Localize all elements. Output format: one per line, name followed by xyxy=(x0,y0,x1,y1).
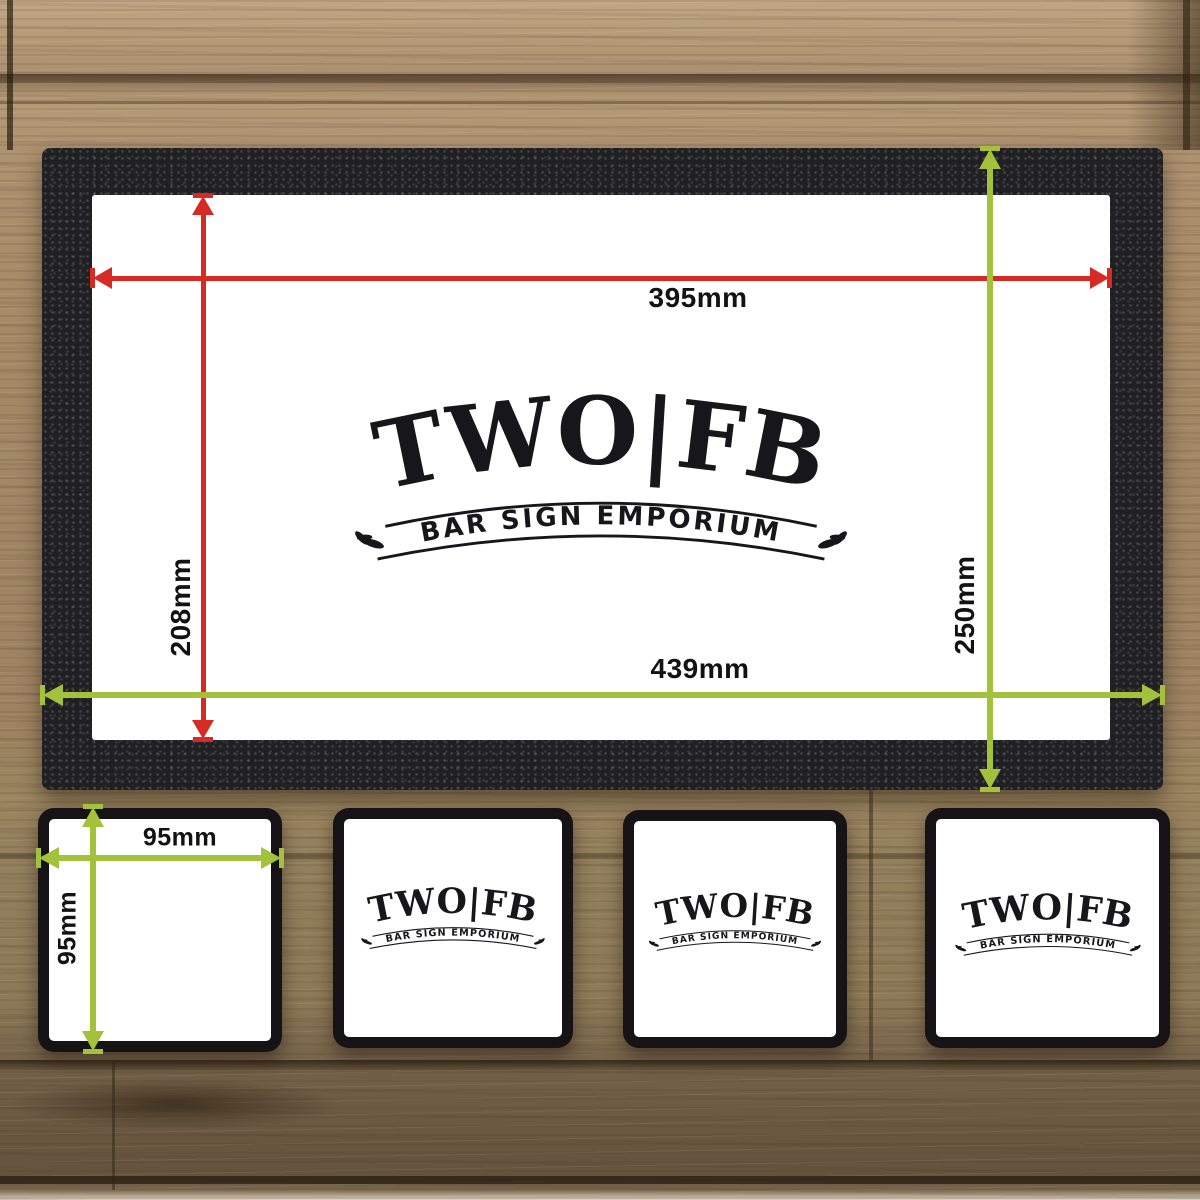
logo-tagline: BAR SIGN EMPORIUM xyxy=(418,501,784,548)
product-photo-scene: TWO|FBBAR SIGN EMPORIUM 395mm 208mm 439m… xyxy=(0,0,1200,1200)
twofb-logo-svg: TWO|FBBAR SIGN EMPORIUM xyxy=(341,378,861,582)
wood-plank-joint xyxy=(7,0,13,150)
coaster-print-area: TWO|FBBAR SIGN EMPORIUM xyxy=(936,819,1159,1037)
leaf-ornament-right-icon xyxy=(1128,944,1142,953)
end-tick xyxy=(83,1049,103,1054)
end-tick xyxy=(193,737,213,742)
twofb-logo-svg: TWO|FBBAR SIGN EMPORIUM xyxy=(356,881,550,957)
dimension-line xyxy=(201,207,206,728)
end-tick xyxy=(90,268,95,288)
end-tick xyxy=(980,787,1000,792)
wood-plank-joint xyxy=(0,1176,1200,1184)
dimension-line xyxy=(104,276,1098,281)
dimension-line xyxy=(987,160,993,778)
dimension-label: 95mm xyxy=(143,824,217,853)
wood-knot xyxy=(10,1078,340,1130)
end-tick xyxy=(40,685,45,705)
wood-plank-joint xyxy=(869,790,873,1062)
logo-wordmark: TWO|FB xyxy=(959,887,1136,938)
coaster-printed: TWO|FBBAR SIGN EMPORIUM xyxy=(925,808,1170,1048)
logo-wordmark: TWO|FB xyxy=(652,887,817,934)
coaster-print-area: TWO|FBBAR SIGN EMPORIUM xyxy=(634,821,836,1037)
end-tick xyxy=(1107,268,1112,288)
coaster-printed: TWO|FBBAR SIGN EMPORIUM xyxy=(333,808,573,1048)
dimension-label: 250mm xyxy=(949,555,981,654)
dimension-label: 95mm xyxy=(54,891,83,965)
leaf-ornament-left-icon xyxy=(360,937,373,946)
twofb-logo: TWO|FBBAR SIGN EMPORIUM xyxy=(356,881,550,957)
leaf-ornament-left-icon xyxy=(953,944,967,953)
leaf-ornament-left-icon xyxy=(647,940,660,948)
dimension-label: 439mm xyxy=(650,653,749,685)
end-tick xyxy=(193,193,213,198)
leaf-ornament-right-icon xyxy=(815,528,851,552)
arrowhead-up-icon xyxy=(82,807,104,827)
leaf-ornament-left-icon xyxy=(351,528,387,552)
wood-plank-joint xyxy=(0,74,1200,83)
wood-plank-joint xyxy=(0,101,1200,104)
twofb-logo: TWO|FBBAR SIGN EMPORIUM xyxy=(341,378,861,582)
leaf-ornament-right-icon xyxy=(810,940,823,948)
arrowhead-down-icon xyxy=(82,1031,104,1051)
arrowhead-left-icon xyxy=(93,267,112,289)
end-tick xyxy=(279,848,284,868)
arrowhead-left-icon xyxy=(39,847,59,869)
arrowhead-left-icon xyxy=(43,684,63,706)
wood-plank-joint xyxy=(0,1060,1200,1070)
end-tick xyxy=(1160,685,1165,705)
dimension-label: 208mm xyxy=(165,557,197,656)
arrowhead-up-icon xyxy=(192,196,214,215)
arrowhead-up-icon xyxy=(979,149,1001,169)
coaster-print-area: TWO|FBBAR SIGN EMPORIUM xyxy=(344,819,562,1037)
wood-shadow xyxy=(1128,0,1200,150)
end-tick xyxy=(83,804,103,809)
arrowhead-down-icon xyxy=(979,769,1001,789)
logo-wordmark: TWO|FB xyxy=(365,378,836,512)
dimension-line xyxy=(50,855,270,861)
dimension-label: 395mm xyxy=(648,282,747,314)
twofb-logo-svg: TWO|FBBAR SIGN EMPORIUM xyxy=(644,887,826,958)
arrowhead-right-icon xyxy=(1142,684,1162,706)
logo-wordmark: TWO|FB xyxy=(365,881,541,931)
coaster-printed: TWO|FBBAR SIGN EMPORIUM xyxy=(623,810,847,1048)
dimension-line xyxy=(90,818,96,1040)
leaf-ornament-right-icon xyxy=(533,937,546,946)
twofb-logo: TWO|FBBAR SIGN EMPORIUM xyxy=(644,887,826,958)
end-tick xyxy=(36,848,41,868)
twofb-logo-svg: TWO|FBBAR SIGN EMPORIUM xyxy=(950,887,1146,964)
arrowhead-right-icon xyxy=(261,847,281,869)
twofb-logo: TWO|FBBAR SIGN EMPORIUM xyxy=(950,887,1146,964)
end-tick xyxy=(980,146,1000,151)
